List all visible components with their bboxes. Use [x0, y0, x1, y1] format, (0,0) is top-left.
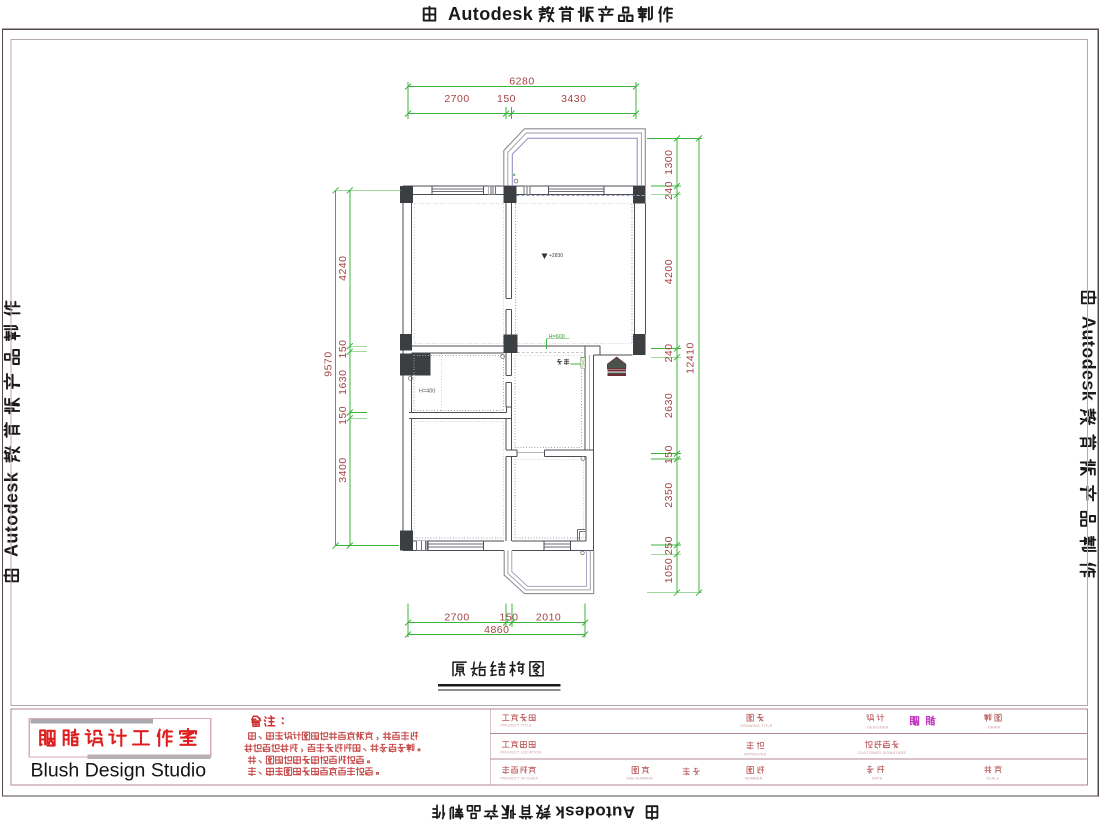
svg-text:3430: 3430: [561, 93, 586, 105]
svg-text:150: 150: [337, 339, 349, 358]
svg-text:1630: 1630: [337, 370, 349, 395]
svg-text:2010: 2010: [536, 612, 561, 624]
svg-text:240: 240: [663, 181, 675, 200]
svg-text:NUMBER: NUMBER: [745, 777, 763, 781]
svg-text:150: 150: [499, 612, 518, 624]
svg-text:2700: 2700: [444, 612, 469, 624]
svg-text:PROJECT LOCATION: PROJECT LOCATION: [500, 751, 541, 755]
svg-text:DRAW: DRAW: [988, 726, 1000, 730]
svg-text:DATE: DATE: [872, 777, 883, 781]
svg-text:4200: 4200: [663, 259, 675, 284]
svg-text:9570: 9570: [323, 351, 335, 376]
svg-text:2630: 2630: [663, 393, 675, 418]
svg-text:APPROVED: APPROVED: [744, 753, 767, 757]
svg-text:H=400: H=400: [419, 389, 435, 395]
svg-text:PROJECT TITLE: PROJECT TITLE: [500, 724, 532, 728]
svg-text:+2830: +2830: [549, 253, 563, 259]
svg-text:SCALE: SCALE: [986, 777, 1000, 781]
svg-text:2350: 2350: [663, 482, 675, 507]
svg-text:3400: 3400: [337, 457, 349, 482]
svg-text:150: 150: [663, 445, 675, 464]
svg-text:Blush Design Studio: Blush Design Studio: [31, 760, 207, 782]
svg-text:150: 150: [497, 93, 516, 105]
svg-text:JOB NUMBER: JOB NUMBER: [626, 777, 653, 781]
svg-text:240: 240: [663, 343, 675, 362]
svg-text:250: 250: [663, 536, 675, 555]
svg-text:1050: 1050: [663, 558, 675, 583]
svg-text:150: 150: [337, 406, 349, 425]
svg-text:4240: 4240: [337, 256, 349, 281]
svg-text:PROJECT IN CHIEF: PROJECT IN CHIEF: [500, 777, 539, 781]
svg-text:4860: 4860: [484, 624, 509, 636]
svg-text:Autodesk: Autodesk: [448, 4, 534, 24]
svg-text:6280: 6280: [509, 76, 534, 88]
svg-text:CUSTOMER SIGNATURE: CUSTOMER SIGNATURE: [858, 751, 906, 755]
svg-text:1300: 1300: [663, 150, 675, 175]
svg-text:Autodesk: Autodesk: [555, 803, 635, 822]
svg-text:DESIGNER: DESIGNER: [867, 726, 888, 730]
svg-text:Autodesk: Autodesk: [1079, 316, 1099, 402]
svg-text:DRAWING TITLE: DRAWING TITLE: [740, 724, 772, 728]
svg-text:12410: 12410: [685, 342, 697, 374]
svg-text:2700: 2700: [444, 93, 469, 105]
